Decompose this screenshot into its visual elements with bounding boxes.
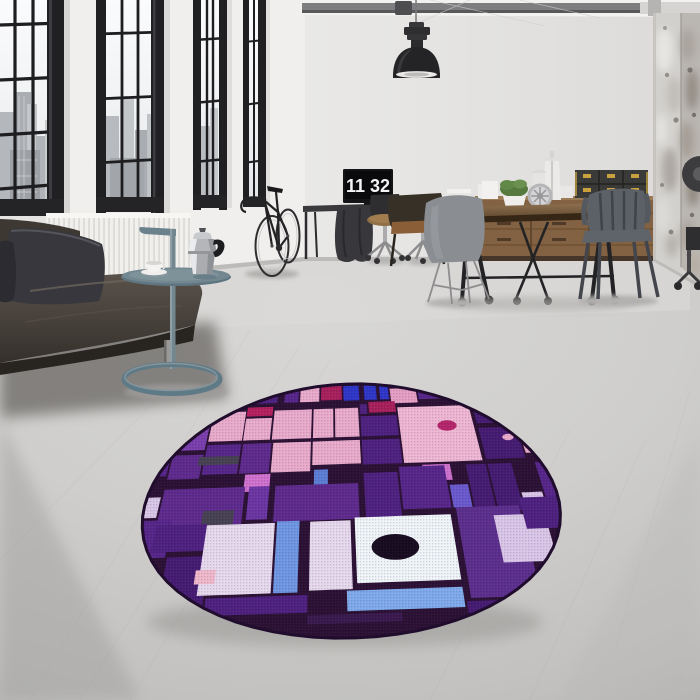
- svg-text:11 32: 11 32: [346, 176, 390, 196]
